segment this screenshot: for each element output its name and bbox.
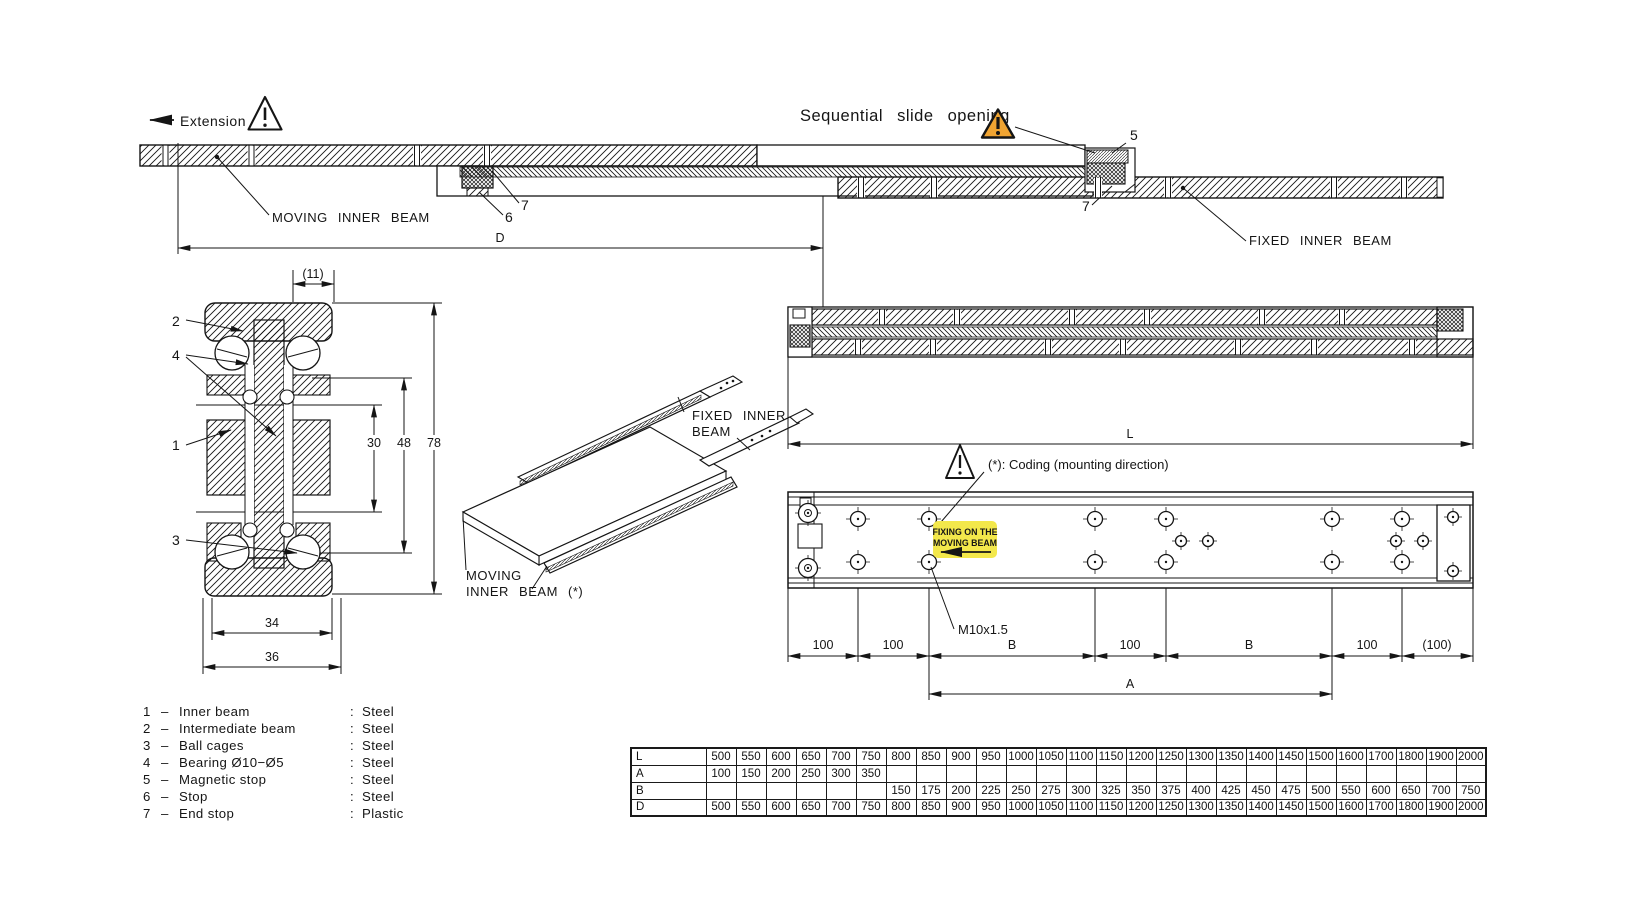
size-table-cell bbox=[1276, 765, 1306, 782]
magnetic-stop-right bbox=[1437, 309, 1463, 331]
size-table-cell: 325 bbox=[1096, 782, 1126, 799]
sequential-label: Sequential slide opening bbox=[800, 107, 1010, 125]
size-table-cell: 175 bbox=[916, 782, 946, 799]
size-table-cell: 900 bbox=[946, 799, 976, 816]
size-table-cell: 250 bbox=[1006, 782, 1036, 799]
size-table-cell bbox=[1006, 765, 1036, 782]
fixing-note-line2: MOVING BEAM bbox=[933, 538, 997, 548]
part-material: Steel bbox=[362, 738, 394, 753]
hole-center bbox=[1395, 540, 1397, 542]
size-table-cell: 1100 bbox=[1066, 748, 1096, 765]
size-table-cell: 250 bbox=[796, 765, 826, 782]
part-colon: : bbox=[350, 738, 354, 753]
dim-b-1: B bbox=[1008, 638, 1016, 652]
size-table-cell bbox=[1066, 765, 1096, 782]
hole-center bbox=[1207, 540, 1209, 542]
fixed-beam-label: FIXED INNER BEAM bbox=[1249, 233, 1392, 248]
warning-triangle-icon bbox=[946, 445, 974, 478]
size-table-cell: 1900 bbox=[1426, 748, 1456, 765]
size-table-cell: 150 bbox=[736, 765, 766, 782]
size-table-cell: 1600 bbox=[1336, 799, 1366, 816]
part-name: Stop bbox=[179, 789, 208, 804]
size-table-cell: 550 bbox=[736, 748, 766, 765]
hole-center bbox=[1165, 518, 1167, 520]
dimension-d: D bbox=[495, 231, 504, 245]
size-table-cell bbox=[856, 782, 886, 799]
size-table-cell: 225 bbox=[976, 782, 1006, 799]
iso-moving-label-line1: MOVING bbox=[466, 568, 522, 583]
dim-100-3: 100 bbox=[1120, 638, 1141, 652]
hole-center bbox=[1452, 516, 1454, 518]
size-table-cell: 350 bbox=[856, 765, 886, 782]
size-table-cell: 600 bbox=[1366, 782, 1396, 799]
size-table-row-label: L bbox=[631, 748, 706, 765]
part-number: 6 bbox=[143, 789, 151, 804]
size-table-cell bbox=[1156, 765, 1186, 782]
fixing-note-highlight: FIXING ON THE MOVING BEAM bbox=[932, 521, 997, 558]
size-table-cell bbox=[1306, 765, 1336, 782]
part-dash: – bbox=[161, 755, 169, 770]
part-number: 1 bbox=[143, 704, 151, 719]
size-table-cell: 2000 bbox=[1456, 799, 1486, 816]
size-table-cell: 1450 bbox=[1276, 748, 1306, 765]
size-table-cell bbox=[1036, 765, 1066, 782]
side-view-closed: L bbox=[788, 307, 1473, 449]
dimension-36: 36 bbox=[265, 650, 279, 664]
size-table-cell: 500 bbox=[1306, 782, 1336, 799]
moving-beam-label: MOVING INNER BEAM bbox=[272, 210, 430, 225]
callout-7-right: 7 bbox=[1082, 198, 1090, 214]
size-table-cell bbox=[1096, 765, 1126, 782]
hole-center bbox=[928, 518, 930, 520]
part-colon: : bbox=[350, 721, 354, 736]
size-table-cell: 1200 bbox=[1126, 748, 1156, 765]
size-table-cell: 1250 bbox=[1156, 748, 1186, 765]
size-table-cell: 500 bbox=[706, 748, 736, 765]
part-name: Magnetic stop bbox=[179, 772, 266, 787]
hole-center bbox=[807, 512, 809, 514]
size-table-cell: 1050 bbox=[1036, 799, 1066, 816]
callout-1: 1 bbox=[172, 437, 180, 453]
size-table-cell: 650 bbox=[1396, 782, 1426, 799]
dimension-30: 30 bbox=[367, 436, 381, 450]
part-name: Ball cages bbox=[179, 738, 244, 753]
size-table-cell: 1500 bbox=[1306, 799, 1336, 816]
hole-center bbox=[857, 561, 859, 563]
hole-center bbox=[1452, 570, 1454, 572]
fixing-note-line1: FIXING ON THE bbox=[932, 527, 997, 537]
size-table-row-label: B bbox=[631, 782, 706, 799]
size-table-cell bbox=[976, 765, 1006, 782]
part-material: Steel bbox=[362, 789, 394, 804]
fixed-beam-end-plate bbox=[700, 376, 742, 397]
size-table-cell: 1700 bbox=[1366, 748, 1396, 765]
magnetic-stop-left bbox=[790, 325, 810, 347]
part-name: Intermediate beam bbox=[179, 721, 296, 736]
dimension-78: 78 bbox=[427, 436, 441, 450]
size-table-cell: 375 bbox=[1156, 782, 1186, 799]
size-table-cell: 150 bbox=[886, 782, 916, 799]
part-colon: : bbox=[350, 772, 354, 787]
size-table-cell bbox=[766, 782, 796, 799]
size-table-row: A100150200250300350 bbox=[631, 765, 1486, 782]
part-material: Steel bbox=[362, 755, 394, 770]
dimension-l: L bbox=[1127, 427, 1134, 441]
size-table-cell: 1350 bbox=[1216, 748, 1246, 765]
part-dash: – bbox=[161, 789, 169, 804]
size-table-row-label: D bbox=[631, 799, 706, 816]
size-table-cell: 1600 bbox=[1336, 748, 1366, 765]
part-colon: : bbox=[350, 755, 354, 770]
size-table: L500550600650700750800850900950100010501… bbox=[630, 747, 1487, 817]
size-table-cell: 650 bbox=[796, 748, 826, 765]
hole-center bbox=[1094, 561, 1096, 563]
part-number: 7 bbox=[143, 806, 151, 821]
size-table-cell bbox=[1126, 765, 1156, 782]
hole-center bbox=[1422, 540, 1424, 542]
coding-note: (*): Coding (mounting direction) bbox=[988, 457, 1169, 472]
fixed-inner-beam bbox=[838, 177, 1443, 198]
size-table-cell bbox=[706, 782, 736, 799]
size-table-cell: 550 bbox=[736, 799, 766, 816]
size-table-cell bbox=[1426, 765, 1456, 782]
stop-block bbox=[462, 166, 493, 188]
part-dash: – bbox=[161, 772, 169, 787]
size-table-cell bbox=[826, 782, 856, 799]
size-table-cell: 600 bbox=[766, 748, 796, 765]
size-table-cell: 700 bbox=[826, 799, 856, 816]
size-table-cell bbox=[1216, 765, 1246, 782]
size-table-row: L500550600650700750800850900950100010501… bbox=[631, 748, 1486, 765]
size-table-cell: 750 bbox=[1456, 782, 1486, 799]
size-table-cell bbox=[1336, 765, 1366, 782]
part-number: 4 bbox=[143, 755, 151, 770]
callout-2: 2 bbox=[172, 313, 180, 329]
part-material: Steel bbox=[362, 721, 394, 736]
size-table-cell: 1450 bbox=[1276, 799, 1306, 816]
part-colon: : bbox=[350, 704, 354, 719]
hole-center bbox=[1331, 561, 1333, 563]
hole-center bbox=[1165, 561, 1167, 563]
part-material: Plastic bbox=[362, 806, 404, 821]
size-table-cell: 1700 bbox=[1366, 799, 1396, 816]
size-table-cell: 1800 bbox=[1396, 799, 1426, 816]
size-table-row: D500550600650700750800850900950100010501… bbox=[631, 799, 1486, 816]
callout-6: 6 bbox=[505, 209, 513, 225]
callout-5: 5 bbox=[1130, 127, 1138, 143]
size-table-cell: 550 bbox=[1336, 782, 1366, 799]
size-table-cell: 200 bbox=[766, 765, 796, 782]
size-table-cell: 500 bbox=[706, 799, 736, 816]
size-table-cell bbox=[916, 765, 946, 782]
dim-b-2: B bbox=[1245, 638, 1253, 652]
hole-center bbox=[1331, 518, 1333, 520]
size-table-cell: 1500 bbox=[1306, 748, 1336, 765]
dim-100-4: 100 bbox=[1357, 638, 1378, 652]
size-table-cell bbox=[946, 765, 976, 782]
size-table-cell: 1150 bbox=[1096, 799, 1126, 816]
size-table-cell: 1300 bbox=[1186, 799, 1216, 816]
part-name: Bearing Ø10−Ø5 bbox=[179, 755, 284, 770]
size-table-cell: 1400 bbox=[1246, 799, 1276, 816]
size-table-cell: 900 bbox=[946, 748, 976, 765]
size-table-row: B150175200225250275300325350375400425450… bbox=[631, 782, 1486, 799]
hole-center bbox=[1180, 540, 1182, 542]
size-table-cell: 750 bbox=[856, 748, 886, 765]
part-material: Steel bbox=[362, 704, 394, 719]
size-table-cell: 700 bbox=[1426, 782, 1456, 799]
size-table-cell: 200 bbox=[946, 782, 976, 799]
size-table-cell: 100 bbox=[706, 765, 736, 782]
dimension-34: 34 bbox=[265, 616, 279, 630]
part-colon: : bbox=[350, 806, 354, 821]
part-dash: – bbox=[161, 806, 169, 821]
size-table-cell: 1100 bbox=[1066, 799, 1096, 816]
size-table-cell: 1800 bbox=[1396, 748, 1426, 765]
part-number: 3 bbox=[143, 738, 151, 753]
size-table-cell bbox=[1246, 765, 1276, 782]
dim-100-paren: (100) bbox=[1422, 638, 1451, 652]
size-table-cell: 850 bbox=[916, 748, 946, 765]
size-table-cell: 1000 bbox=[1006, 799, 1036, 816]
dimension-48: 48 bbox=[397, 436, 411, 450]
part-number: 5 bbox=[143, 772, 151, 787]
callout-7-left: 7 bbox=[521, 197, 529, 213]
part-material: Steel bbox=[362, 772, 394, 787]
size-table-cell bbox=[1456, 765, 1486, 782]
size-table-cell: 950 bbox=[976, 748, 1006, 765]
size-table-cell bbox=[886, 765, 916, 782]
hole-center bbox=[857, 518, 859, 520]
size-table-cell: 1250 bbox=[1156, 799, 1186, 816]
size-table-cell: 850 bbox=[916, 799, 946, 816]
dimension-a: A bbox=[1126, 677, 1135, 691]
part-dash: – bbox=[161, 704, 169, 719]
part-number: 2 bbox=[143, 721, 151, 736]
size-table-cell: 700 bbox=[826, 748, 856, 765]
size-table-cell: 350 bbox=[1126, 782, 1156, 799]
size-table-cell: 1300 bbox=[1186, 748, 1216, 765]
size-table-cell bbox=[796, 782, 826, 799]
hole-center bbox=[1401, 561, 1403, 563]
size-table-cell: 1150 bbox=[1096, 748, 1126, 765]
size-table-cell: 400 bbox=[1186, 782, 1216, 799]
dim-100-2: 100 bbox=[883, 638, 904, 652]
size-table-cell: 600 bbox=[766, 799, 796, 816]
size-table-cell: 1050 bbox=[1036, 748, 1066, 765]
size-table-cell: 750 bbox=[856, 799, 886, 816]
size-table-cell: 300 bbox=[1066, 782, 1096, 799]
extension-label: Extension bbox=[180, 113, 246, 129]
part-dash: – bbox=[161, 721, 169, 736]
mounting-plan-view: (*): Coding (mounting direction) FIXING … bbox=[788, 445, 1473, 700]
size-table-cell: 475 bbox=[1276, 782, 1306, 799]
cross-section-view: (11) 30 48 78 34 36 2 4 1 3 bbox=[172, 267, 445, 674]
dimension-11: (11) bbox=[302, 267, 323, 281]
size-table-cell: 800 bbox=[886, 748, 916, 765]
dim-100-1: 100 bbox=[813, 638, 834, 652]
size-table-cell: 1400 bbox=[1246, 748, 1276, 765]
size-table-cell: 650 bbox=[796, 799, 826, 816]
size-table-cell: 1000 bbox=[1006, 748, 1036, 765]
hole-center bbox=[928, 561, 930, 563]
parts-list: 1–Inner beam:Steel2–Intermediate beam:St… bbox=[143, 704, 404, 821]
size-table-cell: 950 bbox=[976, 799, 1006, 816]
magnetic-stop-assembly bbox=[1085, 148, 1135, 192]
size-table-cell: 800 bbox=[886, 799, 916, 816]
part-name: End stop bbox=[179, 806, 234, 821]
hole-center bbox=[1094, 518, 1096, 520]
hole-center bbox=[807, 567, 809, 569]
size-table-cell bbox=[1396, 765, 1426, 782]
size-table-cell bbox=[1186, 765, 1216, 782]
part-colon: : bbox=[350, 789, 354, 804]
isometric-view: FIXED INNER BEAM MOVING INNER BEAM (*) bbox=[463, 376, 813, 599]
iso-fixed-label-line1: FIXED INNER bbox=[692, 408, 786, 423]
callout-3: 3 bbox=[172, 532, 180, 548]
technical-drawing-page: MOVING INNER BEAM FIXED INNER BEAM Exten… bbox=[0, 0, 1638, 923]
part-dash: – bbox=[161, 738, 169, 753]
size-table-cell: 425 bbox=[1216, 782, 1246, 799]
end-stop-block bbox=[467, 188, 488, 196]
size-table-cell: 1350 bbox=[1216, 799, 1246, 816]
size-table-cell: 1900 bbox=[1426, 799, 1456, 816]
size-table-cell: 275 bbox=[1036, 782, 1066, 799]
thread-callout: M10x1.5 bbox=[958, 622, 1008, 637]
moving-inner-beam bbox=[140, 145, 757, 166]
intermediate-beam-top bbox=[757, 145, 1085, 166]
iso-fixed-label-line2: BEAM bbox=[692, 424, 731, 439]
warning-triangle-icon bbox=[249, 97, 282, 130]
callout-4: 4 bbox=[172, 347, 180, 363]
size-table-cell bbox=[736, 782, 766, 799]
hole-center bbox=[1401, 518, 1403, 520]
size-table-cell bbox=[1366, 765, 1396, 782]
part-name: Inner beam bbox=[179, 704, 250, 719]
iso-moving-label-line2: INNER BEAM (*) bbox=[466, 584, 583, 599]
size-table-cell: 450 bbox=[1246, 782, 1276, 799]
size-table-cell: 1200 bbox=[1126, 799, 1156, 816]
size-table-cell: 2000 bbox=[1456, 748, 1486, 765]
top-assembly-view: MOVING INNER BEAM FIXED INNER BEAM Exten… bbox=[140, 97, 1443, 307]
size-table-cell: 300 bbox=[826, 765, 856, 782]
size-table-row-label: A bbox=[631, 765, 706, 782]
